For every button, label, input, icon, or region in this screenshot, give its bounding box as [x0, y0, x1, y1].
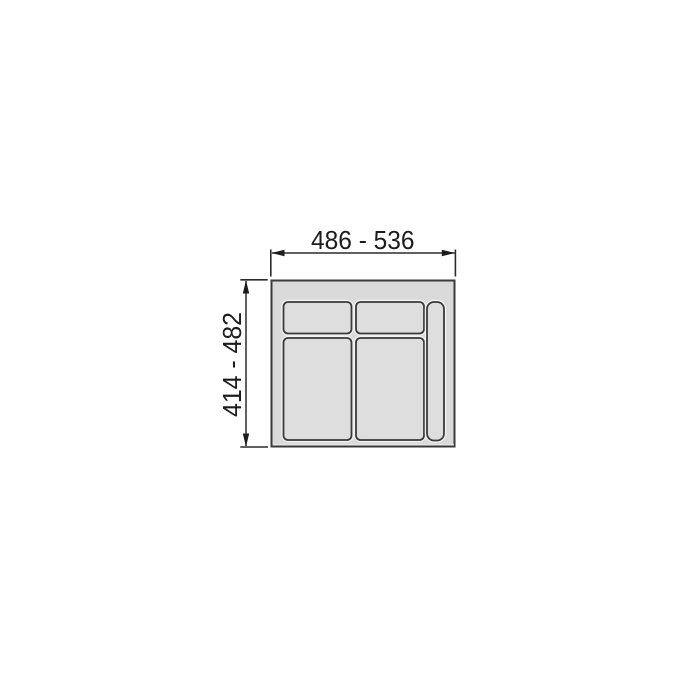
- svg-text:414 - 482: 414 - 482: [217, 312, 247, 417]
- svg-text:486 - 536: 486 - 536: [311, 225, 415, 255]
